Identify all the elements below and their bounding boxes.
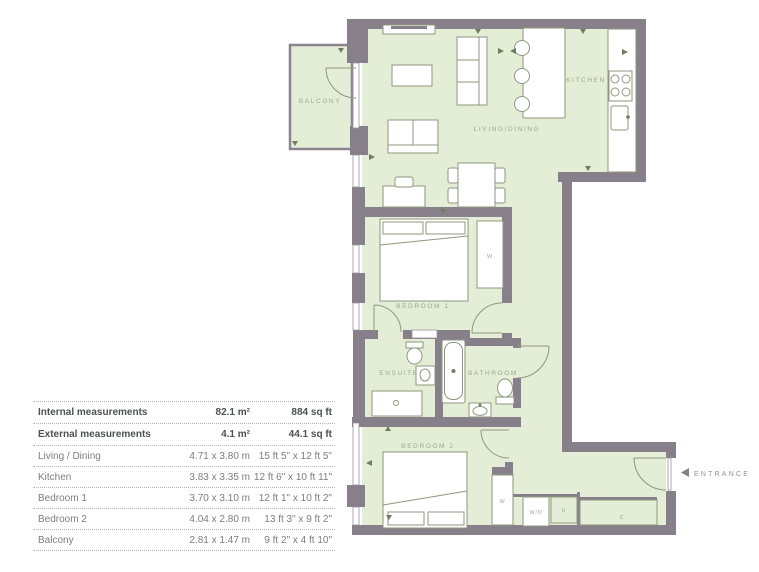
entrance-arrow-icon: [681, 468, 689, 477]
table-row: Internal measurements 82.1 m² 884 sq ft: [33, 401, 335, 423]
table-row: Living / Dining 4.71 x 3.80 m 15 ft 5" x…: [33, 445, 335, 466]
bathtub-drain: [452, 369, 456, 373]
row-label: Kitchen: [33, 472, 173, 483]
entrance-label: ENTRANCE: [694, 471, 750, 478]
ensuite-label: ENSUITE: [379, 370, 418, 377]
desk: [383, 186, 425, 207]
wall: [562, 182, 572, 442]
hob-burner: [611, 75, 619, 83]
sofa: [457, 37, 487, 105]
living-dining-label: LIVING/DINING: [474, 126, 541, 133]
wall: [558, 172, 646, 182]
pillow: [428, 512, 464, 525]
row-label: Living / Dining: [33, 451, 173, 462]
threshold: [412, 330, 437, 338]
utility-label: U: [562, 508, 567, 514]
row-metric: 4.71 x 3.80 m: [173, 451, 250, 462]
wall: [666, 442, 676, 458]
stool: [515, 69, 530, 84]
hob-burner: [622, 75, 630, 83]
wall: [347, 485, 365, 507]
row-imperial: 9 ft 2" x 4 ft 10": [250, 535, 335, 546]
row-metric: 3.83 x 3.35 m: [173, 472, 250, 483]
bathroom-toilet: [498, 379, 513, 397]
hob-burner: [622, 88, 630, 96]
row-label: Bedroom 2: [33, 514, 173, 525]
wall: [347, 19, 368, 63]
stool: [515, 97, 530, 112]
wall: [636, 19, 646, 182]
wardrobe2-label: W: [500, 499, 506, 505]
wall: [352, 417, 521, 427]
row-imperial: 12 ft 6" x 10 ft 11": [250, 472, 335, 483]
row-label: External measurements: [33, 429, 173, 440]
window: [353, 63, 359, 128]
row-metric: 3.70 x 3.10 m: [173, 493, 250, 504]
stool: [515, 41, 530, 56]
coffee-table: [392, 65, 432, 86]
wall: [562, 442, 666, 452]
wall: [492, 467, 513, 475]
wardrobe1-label: W: [487, 254, 493, 260]
floorplan-page: BALCONY LIVING/DINING KITCHEN BEDROOM 1 …: [0, 0, 759, 572]
pillow: [388, 512, 424, 525]
row-imperial: 44.1 sq ft: [250, 429, 335, 440]
window: [353, 423, 359, 485]
window: [353, 303, 359, 330]
washer-dryer-label: W/D: [529, 510, 542, 516]
tv: [391, 26, 427, 29]
wall: [350, 126, 368, 155]
bathroom-toilet-cistern: [496, 397, 514, 404]
dining-chair: [448, 188, 458, 203]
row-label: Internal measurements: [33, 407, 173, 418]
ensuite-toilet: [407, 348, 422, 364]
bathroom-label: BATHROOM: [468, 370, 518, 377]
kitchen-label: KITCHEN: [566, 77, 606, 84]
table-row: Bedroom 1 3.70 x 3.10 m 12 ft 1" x 10 ft…: [33, 487, 335, 508]
table-row: Kitchen 3.83 x 3.35 m 12 ft 6" x 10 ft 1…: [33, 466, 335, 487]
kitchen-sink: [611, 106, 628, 130]
shower-drain: [394, 401, 399, 406]
window: [353, 245, 359, 273]
balcony-label: BALCONY: [299, 98, 341, 105]
basin-tap: [479, 404, 482, 407]
dining-chair: [495, 168, 505, 183]
bathroom-basin-bowl: [473, 407, 487, 416]
row-metric: 4.1 m²: [173, 429, 250, 440]
desk-chair: [395, 177, 413, 187]
row-label: Bedroom 1: [33, 493, 173, 504]
wall: [362, 330, 378, 339]
bedroom1-label: BEDROOM 1: [396, 303, 449, 310]
wall: [352, 273, 365, 303]
window: [353, 507, 359, 525]
hob-burner: [611, 88, 619, 96]
row-imperial: 13 ft 3" x 9 ft 2": [250, 514, 335, 525]
table-row: External measurements 4.1 m² 44.1 sq ft: [33, 423, 335, 445]
row-metric: 2.81 x 1.47 m: [173, 535, 250, 546]
table-row: Balcony 2.81 x 1.47 m 9 ft 2" x 4 ft 10": [33, 529, 335, 551]
dining-table: [458, 163, 495, 207]
row-metric: 82.1 m²: [173, 407, 250, 418]
bedroom2-label: BEDROOM 2: [401, 443, 454, 450]
row-imperial: 15 ft 5" x 12 ft 5": [250, 451, 335, 462]
pillow: [426, 222, 465, 234]
wall: [362, 207, 502, 217]
row-label: Balcony: [33, 535, 173, 546]
row-imperial: 12 ft 1" x 10 ft 2": [250, 493, 335, 504]
table-row: Bedroom 2 4.04 x 2.80 m 13 ft 3" x 9 ft …: [33, 508, 335, 529]
window: [353, 155, 359, 187]
dining-chair: [448, 168, 458, 183]
entrance-door-leaf: [668, 458, 671, 490]
measurements-table: Internal measurements 82.1 m² 884 sq ft …: [33, 401, 335, 551]
row-imperial: 884 sq ft: [250, 407, 335, 418]
ensuite-basin-bowl: [420, 369, 430, 381]
wall: [353, 330, 365, 423]
pillow: [383, 222, 423, 234]
row-metric: 4.04 x 2.80 m: [173, 514, 250, 525]
cupboard-label: C: [620, 515, 625, 521]
dining-chair: [495, 188, 505, 203]
ensuite-toilet-cistern: [406, 342, 423, 348]
sink-tap: [626, 115, 630, 119]
